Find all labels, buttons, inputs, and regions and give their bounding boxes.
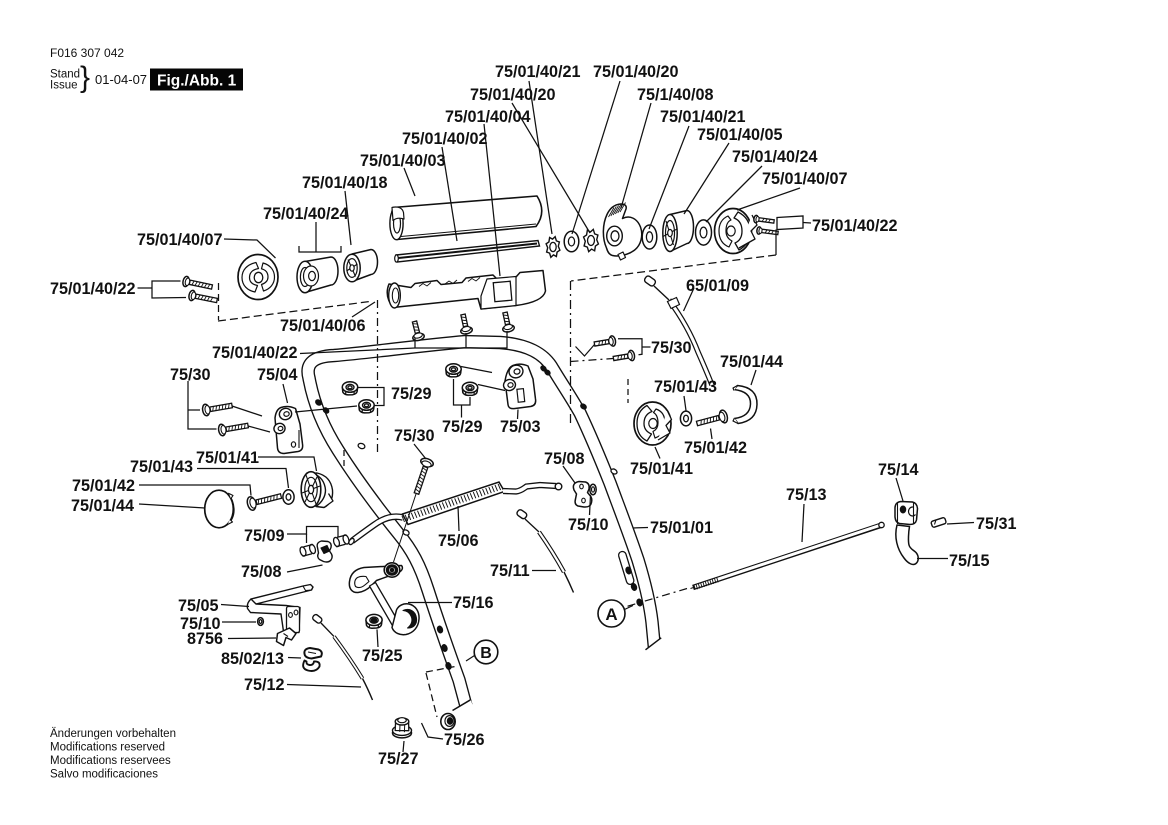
svg-text:Modifications reserved: Modifications reserved (50, 742, 165, 754)
svg-text:75/01/01: 75/01/01 (650, 519, 713, 537)
svg-text:75/01/40/06: 75/01/40/06 (280, 317, 366, 335)
svg-text:A: A (605, 605, 617, 624)
svg-text:75/09: 75/09 (244, 527, 285, 545)
svg-text:75/01/41: 75/01/41 (630, 460, 693, 478)
svg-text:75/08: 75/08 (241, 563, 282, 581)
svg-text:75/01/40/02: 75/01/40/02 (402, 130, 488, 148)
svg-text:75/01/40/05: 75/01/40/05 (697, 126, 783, 144)
svg-text:75/01/42: 75/01/42 (684, 439, 747, 457)
svg-text:75/01/43: 75/01/43 (654, 378, 717, 396)
svg-text:75/16: 75/16 (453, 594, 494, 612)
svg-text:75/27: 75/27 (378, 750, 419, 768)
svg-text:75/04: 75/04 (257, 366, 298, 384)
svg-text:75/13: 75/13 (786, 486, 827, 504)
svg-text:75/12: 75/12 (244, 676, 285, 694)
svg-text:Änderungen vorbehalten: Änderungen vorbehalten (50, 728, 176, 740)
svg-text:75/29: 75/29 (391, 385, 432, 403)
svg-text:75/25: 75/25 (362, 647, 403, 665)
svg-text:75/29: 75/29 (442, 418, 483, 436)
svg-text:75/01/40/04: 75/01/40/04 (445, 108, 531, 126)
svg-text:75/11: 75/11 (490, 562, 530, 580)
svg-text:75/30: 75/30 (394, 427, 435, 445)
svg-text:75/1/40/08: 75/1/40/08 (637, 86, 714, 104)
svg-text:75/31: 75/31 (976, 515, 1017, 533)
svg-text:75/01/40/03: 75/01/40/03 (360, 152, 446, 170)
svg-text:75/01/40/20: 75/01/40/20 (593, 63, 679, 81)
svg-text:75/01/40/18: 75/01/40/18 (302, 174, 388, 192)
svg-text:75/01/41: 75/01/41 (196, 449, 259, 467)
svg-text:85/02/13: 85/02/13 (221, 650, 284, 668)
svg-text:75/01/40/24: 75/01/40/24 (732, 148, 818, 166)
svg-text:75/06: 75/06 (438, 532, 479, 550)
svg-text:75/01/44: 75/01/44 (71, 497, 134, 515)
svg-text:75/08: 75/08 (544, 450, 585, 468)
svg-text:F016 307 042: F016 307 042 (50, 46, 124, 60)
svg-text:75/01/40/22: 75/01/40/22 (812, 217, 898, 235)
svg-text:Modifications reservees: Modifications reservees (50, 755, 171, 767)
svg-text:65/01/09: 65/01/09 (686, 277, 749, 295)
svg-text:75/01/44: 75/01/44 (720, 353, 783, 371)
svg-text:75/15: 75/15 (949, 552, 990, 570)
svg-text:75/01/40/07: 75/01/40/07 (762, 170, 848, 188)
svg-text:75/05: 75/05 (178, 597, 219, 615)
svg-text:}: } (80, 61, 90, 94)
svg-text:75/26: 75/26 (444, 731, 485, 749)
svg-text:Fig./Abb. 1: Fig./Abb. 1 (157, 73, 237, 90)
svg-text:01-04-07: 01-04-07 (95, 72, 147, 87)
svg-text:75/01/40/22: 75/01/40/22 (50, 280, 136, 298)
svg-text:75/01/40/24: 75/01/40/24 (263, 205, 349, 223)
svg-text:8756: 8756 (187, 630, 223, 648)
svg-text:75/03: 75/03 (500, 418, 541, 436)
svg-text:75/30: 75/30 (170, 366, 211, 384)
svg-text:75/01/43: 75/01/43 (130, 458, 193, 476)
svg-text:75/01/42: 75/01/42 (72, 477, 135, 495)
svg-text:75/10: 75/10 (568, 516, 609, 534)
svg-text:75/01/40/07: 75/01/40/07 (137, 231, 223, 249)
svg-text:75/01/40/20: 75/01/40/20 (470, 86, 556, 104)
svg-text:75/01/40/21: 75/01/40/21 (660, 108, 746, 126)
svg-text:Issue: Issue (50, 80, 78, 92)
svg-text:75/30: 75/30 (651, 339, 692, 357)
svg-text:Salvo modificaciones: Salvo modificaciones (50, 769, 158, 781)
svg-text:B: B (480, 645, 492, 662)
svg-text:75/01/40/21: 75/01/40/21 (495, 63, 581, 81)
svg-text:75/14: 75/14 (878, 461, 919, 479)
svg-text:75/01/40/22: 75/01/40/22 (212, 344, 298, 362)
